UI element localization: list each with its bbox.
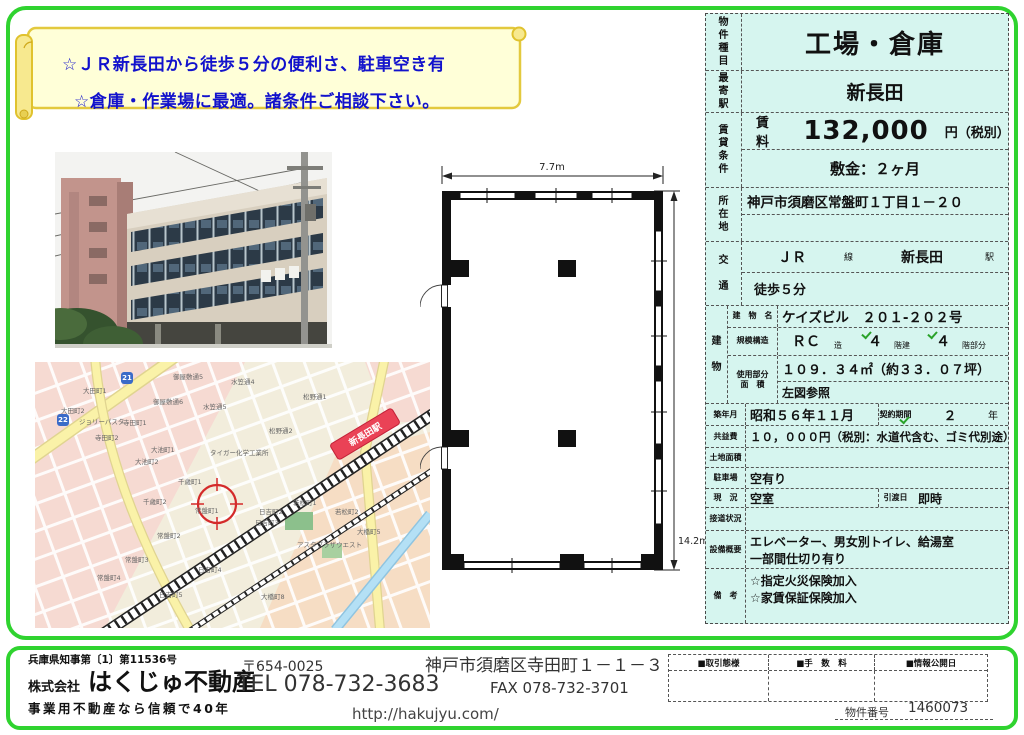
map-town-label: 日吉町4 (198, 567, 222, 574)
plan-height-label: 14.2m (678, 536, 705, 547)
access-rail: ＪＲ (778, 247, 806, 267)
company-line: 株式会社 はくじゅ不動産 (28, 662, 256, 697)
facilities-line-2: 一部間仕切り有り (750, 550, 846, 567)
area-row: 使用部分 面 積 １０９．３４㎡（約３３．０７坪） 左図参照 (728, 356, 1008, 403)
row-nearest-station: 最寄駅 新長田 (706, 71, 1008, 113)
plan-top-windows (460, 188, 632, 203)
row-status: 現 況 空室 引渡日 即時 (706, 489, 1008, 508)
property-type-label: 物件種目 (719, 16, 729, 69)
row-road: 接道状況 (706, 508, 1008, 531)
parking-label: 駐車場 (714, 473, 738, 483)
publish-date-cell (875, 671, 987, 701)
route-shield-21: 21 (121, 372, 133, 384)
row-address: 所在地 神戸市須磨区常盤町１丁目１－２０ (706, 188, 1008, 242)
map-town-label: 水笠通5 (203, 404, 227, 411)
map-town-label: 大池町2 (135, 459, 159, 466)
row-parking: 駐車場 空有り (706, 468, 1008, 489)
contract-value: ２ (912, 404, 988, 425)
map-town-label: 常盤町4 (97, 575, 121, 582)
rent-value: 132,000 (803, 116, 928, 146)
plan-door-2 (420, 447, 452, 469)
map-poi-label: アスタプラザウエスト (297, 542, 362, 549)
commission-cell (769, 671, 875, 701)
road-value (746, 508, 1008, 530)
row-common-fee: 共益費 １０，０００円（税別：水道代含む、ゴミ代別途） (706, 426, 1008, 448)
contract-unit: 年 (988, 404, 1008, 425)
map-poi-label: ジョリーパスタ (79, 419, 124, 426)
location-map: 新長田駅 21 22 大田町1 大田町2 御屋敷通5 御屋敷通6 水笠通4 水笠… (35, 362, 430, 628)
property-no-underline (835, 719, 993, 720)
map-town-label: 常盤町2 (157, 533, 181, 540)
route-shield-22: 22 (57, 414, 69, 426)
area-label-1: 使用部分 (737, 370, 769, 380)
status-value: 空室 (746, 489, 878, 507)
area-value: １０９．３４㎡（約３３．０７坪） (778, 356, 1008, 382)
company-slogan: 事業用不動産なら信頼で40年 (28, 698, 230, 717)
office-address: 神戸市須磨区寺田町１－１－３ (425, 651, 663, 676)
built-label: 築年月 (714, 410, 738, 420)
map-town-label: 日吉町2 (259, 509, 283, 516)
area-note: 左図参照 (778, 382, 1008, 403)
access-station-suffix: 駅 (985, 250, 994, 263)
row-land-area: 土地面積 (706, 448, 1008, 468)
access-line-1: ＪＲ 線 新長田 駅 (742, 242, 1008, 273)
route-shield-22-label: 22 (58, 416, 68, 424)
common-fee-value: １０，０００円（税別：水道代含む、ゴミ代別途） (746, 426, 1008, 447)
rent-row: 賃料 132,000 円（税別） (742, 113, 1008, 150)
facilities-line-1: エレベーター、男女別トイレ、給湯室 (750, 533, 954, 550)
publish-date-header: ■情報公開日 (875, 655, 987, 670)
handover-value: 即時 (912, 489, 1008, 507)
access-station: 新長田 (901, 247, 943, 267)
row-notes: 備 考 ☆指定火災保険加入 ☆家賃保証保険加入 (706, 569, 1008, 623)
fax-number: FAX 078-732-3701 (490, 679, 629, 697)
website-url: http://hakujyu.com/ (352, 705, 499, 723)
notes-label: 備 考 (714, 591, 738, 601)
company-name: はくじゅ不動産 (88, 662, 256, 697)
map-poi-label: タイガー化学工業所 (210, 450, 269, 457)
map-town-label: 松野通1 (303, 394, 327, 401)
map-town-label: 千歳町2 (143, 499, 167, 506)
row-facilities: 設備概要 エレベーター、男女別トイレ、給湯室 一部間仕切り有り (706, 531, 1008, 569)
building-name-value: ケイズビル ２０１-２０２号 (778, 306, 1008, 327)
notes-line-1: ☆指定火災保険加入 (750, 572, 857, 589)
deal-type-header: ■取引態様 (669, 655, 769, 670)
company-prefix: 株式会社 (28, 676, 80, 697)
structure-kaidate: 階建 (894, 340, 910, 351)
handover-label: 引渡日 (884, 493, 908, 503)
structure-part: ４ (936, 331, 950, 351)
row-built: 築年月 昭和５６年１１月 契約期間 ２ 年 (706, 404, 1008, 426)
map-town-label: 水笠通4 (231, 379, 255, 386)
land-area-label: 土地面積 (710, 453, 742, 463)
flyer-page: ☆ＪＲ新長田から徒歩５分の便利さ、駐車空き有 ☆倉庫・作業場に最適。諸条件ご相談… (0, 0, 1024, 735)
tel-number: TEL 078-732-3683 (237, 672, 439, 697)
common-fee-label: 共益費 (714, 432, 738, 442)
parking-value: 空有り (746, 468, 1008, 488)
property-table: 物件種目 工場・倉庫 最寄駅 新長田 賃貸条件 賃料 132,000 円（税別）… (705, 13, 1009, 624)
deal-type-cell (669, 671, 769, 701)
map-town-label: 常盤町3 (125, 557, 149, 564)
map-town-label: 御屋敷通6 (153, 399, 183, 406)
facilities-label: 設備概要 (710, 545, 742, 555)
address-value: 神戸市須磨区常盤町１丁目１－２０ (742, 188, 1008, 215)
row-property-type: 物件種目 工場・倉庫 (706, 14, 1008, 71)
map-town-label: 御屋敷通5 (173, 374, 203, 381)
map-town-label: 日吉町3 (255, 520, 279, 527)
plan-bottom-windows (442, 554, 663, 573)
plan-width-label: 7.7m (539, 162, 565, 173)
route-shield-21-label: 21 (122, 374, 132, 382)
map-town-label: 若松町2 (335, 509, 359, 516)
rent-label: 賃料 (756, 112, 781, 150)
structure-type: ＲＣ (792, 331, 820, 351)
access-label: 交通 (719, 248, 729, 300)
map-town-label: 大池町1 (151, 447, 175, 454)
rent-unit: 円（税別） (945, 122, 1008, 141)
lease-terms-label: 賃貸条件 (719, 124, 729, 177)
map-town-label: 常盤町1 (195, 508, 219, 515)
banner-line-1: ☆ＪＲ新長田から徒歩５分の便利さ、駐車空き有 (62, 50, 445, 75)
address-label: 所在地 (719, 195, 729, 235)
map-town-label: 松野通2 (269, 428, 293, 435)
nearest-station-label: 最寄駅 (719, 72, 729, 112)
row-building: 建物 建 物 名 ケイズビル ２０１-２０２号 規模構造 ＲＣ 造 ４ 階建 ４… (706, 306, 1008, 404)
structure-kaibubun: 階部分 (962, 340, 986, 351)
notes-line-2: ☆家賃保証保険加入 (750, 589, 857, 606)
banner-line-2: ☆倉庫・作業場に最適。諸条件ご相談下さい。 (74, 87, 440, 112)
row-access: 交通 ＪＲ 線 新長田 駅 徒歩５分 (706, 242, 1008, 306)
nearest-station-value: 新長田 (742, 71, 1008, 112)
map-town-label: 大橋町5 (357, 529, 381, 536)
land-area-value (746, 448, 1008, 467)
map-town-label: 寺田町2 (95, 435, 119, 442)
building-name-row: 建 物 名 ケイズビル ２０１-２０２号 (728, 306, 1008, 328)
map-town-label: 大橋町8 (261, 594, 285, 601)
map-graphic: 新長田駅 (35, 362, 430, 628)
map-town-label: 日吉町5 (159, 592, 183, 599)
structure-zou: 造 (834, 340, 842, 351)
address-blank (742, 215, 1008, 241)
commission-header: ■手 数 料 (769, 655, 875, 670)
access-walk: 徒歩５分 (742, 273, 1008, 305)
floor-plan: 7.7m 14.2m (420, 156, 705, 606)
status-label: 現 況 (714, 493, 738, 503)
property-no-label: 物件番号 (845, 704, 889, 720)
structure-value: ＲＣ 造 ４ 階建 ４ 階部分 (778, 328, 1008, 355)
row-lease-terms: 賃貸条件 賃料 132,000 円（税別） 敷金：２ヶ月 (706, 113, 1008, 188)
built-value: 昭和５６年１１月 (746, 404, 878, 425)
map-town-label: 大田町2 (61, 408, 85, 415)
property-no-value: 1460073 (908, 700, 968, 716)
property-type-value: 工場・倉庫 (742, 14, 1008, 70)
map-town-label: 千歳町1 (178, 479, 202, 486)
access-rail-suffix: 線 (844, 250, 853, 263)
deal-info-table: ■取引態様 ■手 数 料 ■情報公開日 (668, 654, 988, 702)
building-label: 建物 (712, 329, 722, 381)
deposit-row: 敷金：２ヶ月 (742, 150, 1008, 187)
map-town-label: 若松町1 (293, 500, 317, 507)
building-name-label: 建 物 名 (733, 311, 773, 321)
map-town-label: 寺田町1 (123, 420, 147, 427)
map-town-label: 大田町1 (83, 388, 107, 395)
road-label: 接道状況 (710, 514, 742, 524)
area-label-2: 面 積 (741, 380, 765, 390)
plan-door-1 (420, 285, 452, 307)
building-photo (55, 152, 332, 348)
structure-label: 規模構造 (737, 336, 769, 346)
